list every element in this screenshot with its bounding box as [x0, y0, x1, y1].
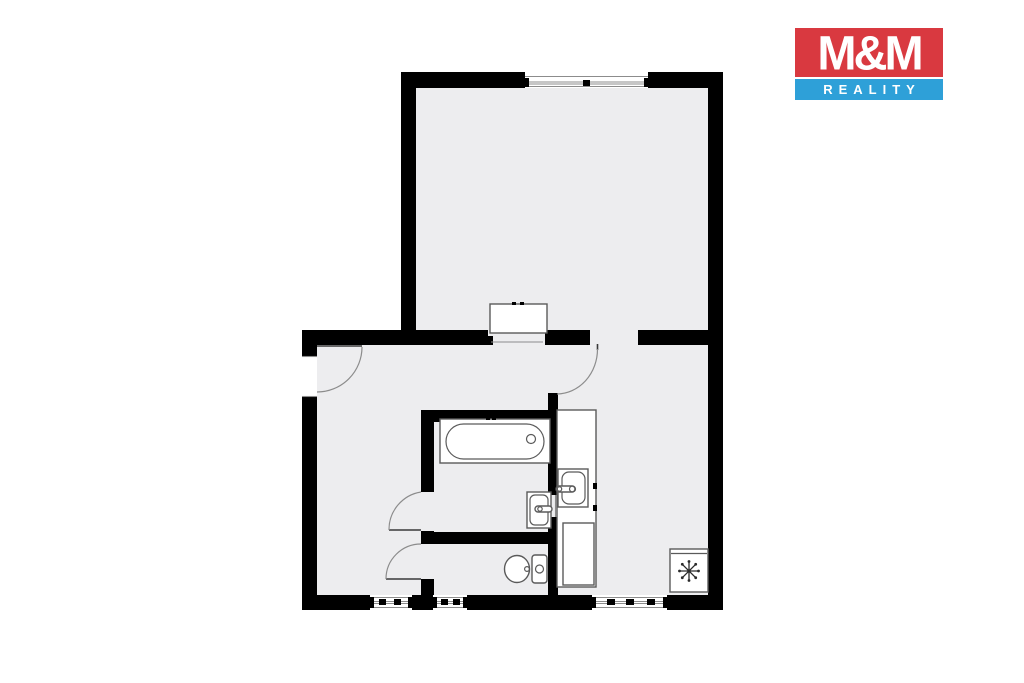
kitchen-sink	[556, 469, 588, 507]
wall-living-left	[401, 72, 416, 345]
wall-wc-top	[421, 532, 558, 544]
base-cabinet	[563, 523, 594, 585]
wall-bottom-pier	[412, 595, 433, 610]
logo-subtitle-box: REALITY	[795, 79, 943, 100]
window-top	[525, 72, 648, 88]
snowflake-icon	[678, 560, 700, 582]
wall-living-bottom-c	[638, 330, 723, 345]
logo-title: M&M	[817, 29, 920, 77]
window-mullion	[583, 80, 590, 86]
wall-bottom-a	[302, 595, 370, 610]
wall-wc-left-stub	[421, 579, 434, 596]
wall-bottom-c	[667, 595, 723, 610]
logo-subtitle: REALITY	[817, 83, 921, 96]
toilet-tank	[532, 555, 547, 583]
wall-living-bottom-a	[416, 330, 488, 345]
wall-top-left	[401, 72, 525, 88]
room-living	[410, 80, 712, 340]
refrigerator	[670, 549, 708, 592]
wall-left-upper-stub	[302, 330, 317, 356]
wall-bottom-b	[467, 595, 592, 610]
toilet	[505, 555, 548, 583]
wall-left-lower	[302, 397, 317, 610]
bathtub	[440, 417, 550, 463]
washbasin	[527, 492, 552, 528]
window-bottom-middle	[433, 595, 467, 610]
window-bottom-right	[592, 595, 667, 610]
door-jamb-tick	[488, 336, 493, 345]
wardrobe-cabinet	[490, 302, 547, 333]
agency-logo: M&M REALITY	[795, 28, 943, 100]
wall-living-bottom-b	[545, 330, 590, 345]
wall-bathroom-left	[421, 410, 434, 492]
window-bottom-left	[370, 595, 412, 610]
logo-title-box: M&M	[795, 28, 943, 77]
floorplan-page: M&M REALITY	[0, 0, 1024, 683]
floorplan-drawing	[0, 0, 1024, 683]
